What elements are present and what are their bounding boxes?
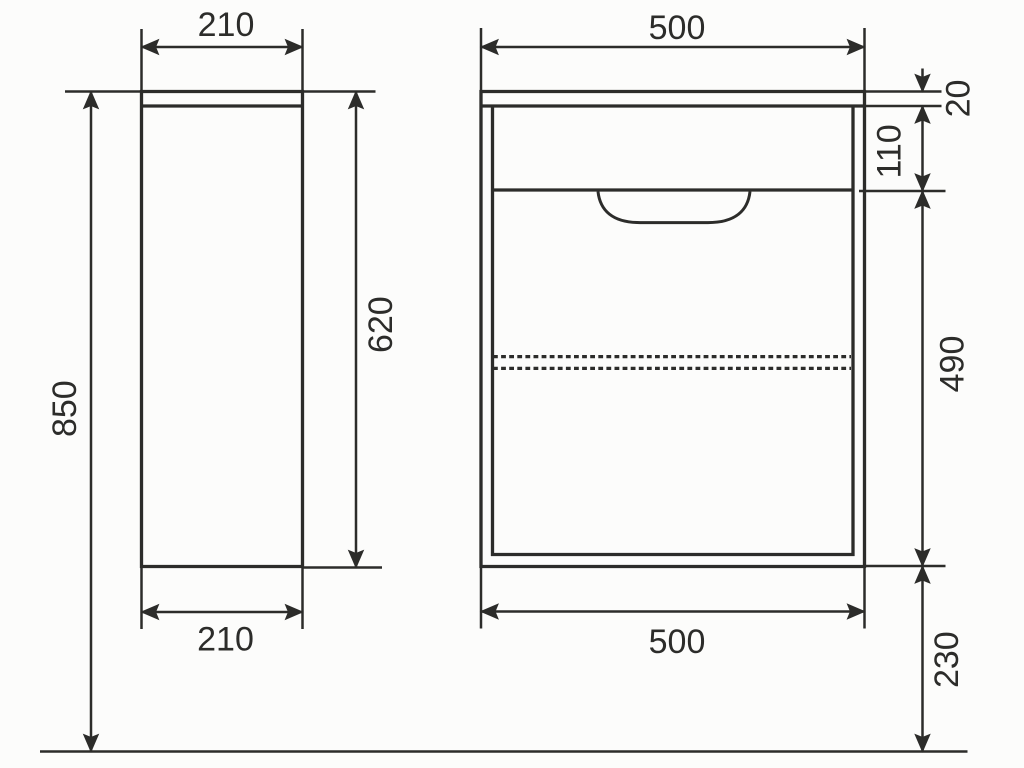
svg-text:20: 20 — [939, 80, 977, 118]
svg-text:110: 110 — [871, 124, 909, 178]
svg-text:500: 500 — [649, 623, 706, 661]
svg-text:620: 620 — [362, 296, 400, 353]
svg-text:490: 490 — [933, 336, 971, 393]
svg-text:850: 850 — [46, 380, 84, 437]
svg-text:210: 210 — [197, 621, 254, 659]
svg-text:230: 230 — [928, 631, 966, 688]
svg-text:500: 500 — [649, 9, 706, 47]
svg-text:210: 210 — [198, 6, 255, 44]
